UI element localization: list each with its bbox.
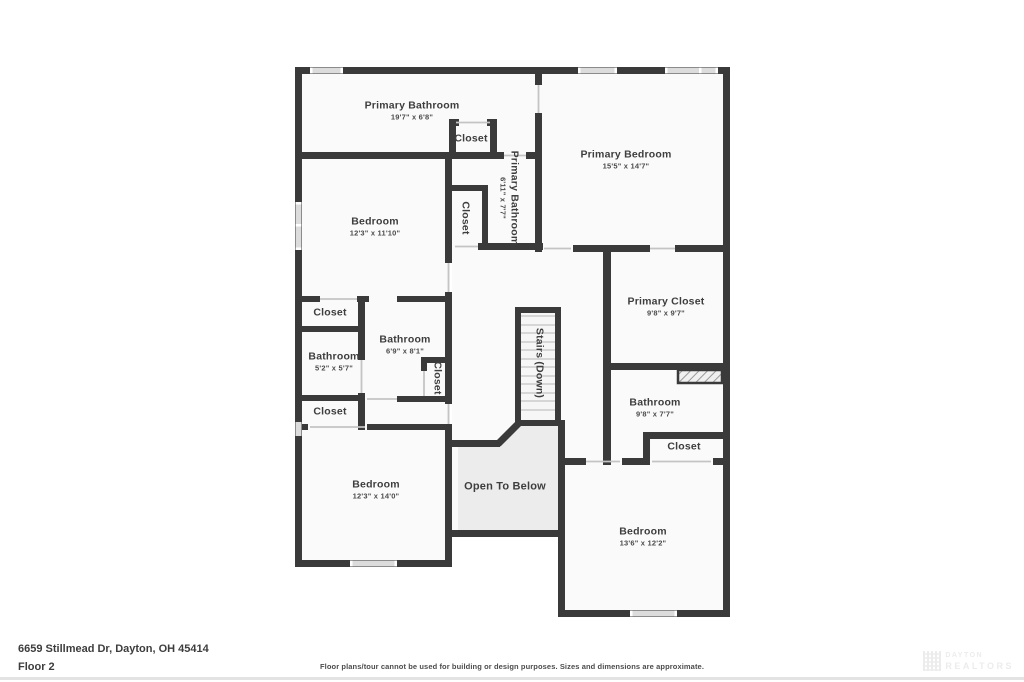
realtor-logo-icon [923, 651, 941, 671]
realtor-watermark: DAYTON REALTORS [923, 650, 1014, 672]
floor-label: Floor 2 [18, 661, 55, 673]
floor-plan-page: Primary Bathroom 19'7" x 6'8" Closet Pri… [0, 0, 1024, 682]
floor-plan-drawing [0, 0, 1024, 682]
hatched-shelf [678, 370, 722, 383]
address-text: 6659 Stillmead Dr, Dayton, OH 45414 [18, 643, 209, 655]
watermark-line1: DAYTON [945, 650, 1014, 661]
disclaimer-text: Floor plans/tour cannot be used for buil… [320, 662, 704, 671]
watermark-line2: REALTORS [945, 661, 1014, 672]
bottom-divider [0, 677, 1024, 680]
